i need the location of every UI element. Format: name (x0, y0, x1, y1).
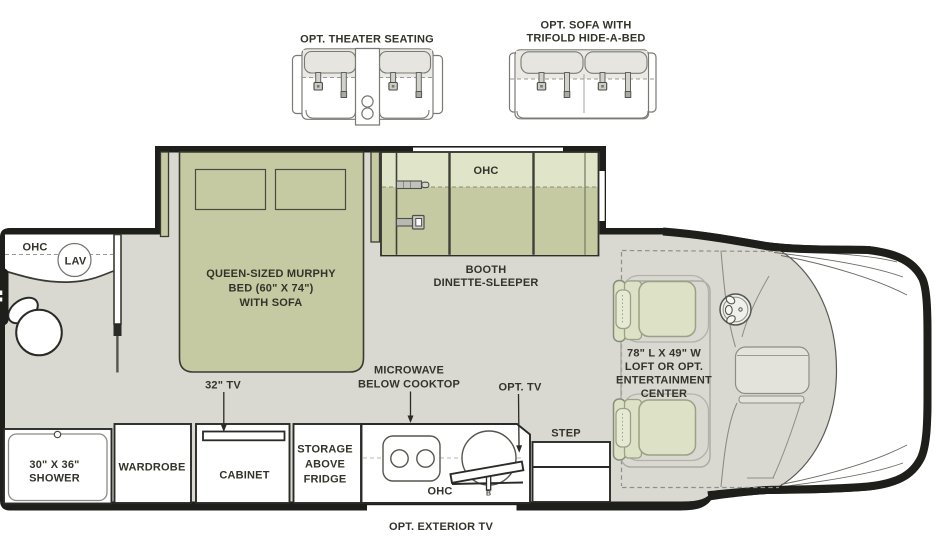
svg-text:WITH SOFA: WITH SOFA (240, 297, 303, 309)
svg-text:CENTER: CENTER (641, 388, 687, 400)
svg-text:OPT. EXTERIOR TV: OPT. EXTERIOR TV (389, 521, 494, 533)
svg-text:QUEEN-SIZED MURPHY: QUEEN-SIZED MURPHY (206, 268, 336, 280)
svg-text:OPT. THEATER SEATING: OPT. THEATER SEATING (300, 34, 434, 46)
svg-text:ENTERTAINMENT: ENTERTAINMENT (616, 375, 712, 387)
svg-text:STEP: STEP (551, 428, 581, 440)
svg-text:BED (60" X 74"): BED (60" X 74") (229, 283, 314, 295)
svg-text:32" TV: 32" TV (205, 380, 241, 392)
svg-text:BELOW COOKTOP: BELOW COOKTOP (358, 379, 460, 391)
svg-text:CABINET: CABINET (219, 470, 269, 482)
svg-text:WARDROBE: WARDROBE (119, 462, 186, 474)
svg-text:78" L X 49" W: 78" L X 49" W (627, 348, 701, 360)
svg-text:TRIFOLD HIDE-A-BED: TRIFOLD HIDE-A-BED (526, 33, 645, 45)
svg-text:ABOVE: ABOVE (305, 459, 345, 471)
svg-text:OHC: OHC (22, 242, 47, 254)
svg-text:FRIDGE: FRIDGE (304, 474, 347, 486)
svg-text:OPT. SOFA WITH: OPT. SOFA WITH (540, 20, 631, 32)
svg-text:STORAGE: STORAGE (297, 444, 353, 456)
svg-text:LAV: LAV (65, 256, 87, 268)
svg-text:B: B (486, 491, 491, 498)
svg-text:SHOWER: SHOWER (29, 473, 80, 485)
svg-text:OPT. TV: OPT. TV (499, 382, 542, 394)
svg-text:OHC: OHC (427, 486, 452, 498)
svg-text:DINETTE-SLEEPER: DINETTE-SLEEPER (433, 277, 538, 289)
svg-text:MICROWAVE: MICROWAVE (374, 365, 444, 377)
svg-text:LOFT OR OPT.: LOFT OR OPT. (625, 361, 703, 373)
svg-text:OHC: OHC (473, 165, 498, 177)
svg-text:30" X 36": 30" X 36" (29, 459, 79, 471)
svg-text:BOOTH: BOOTH (466, 264, 507, 276)
